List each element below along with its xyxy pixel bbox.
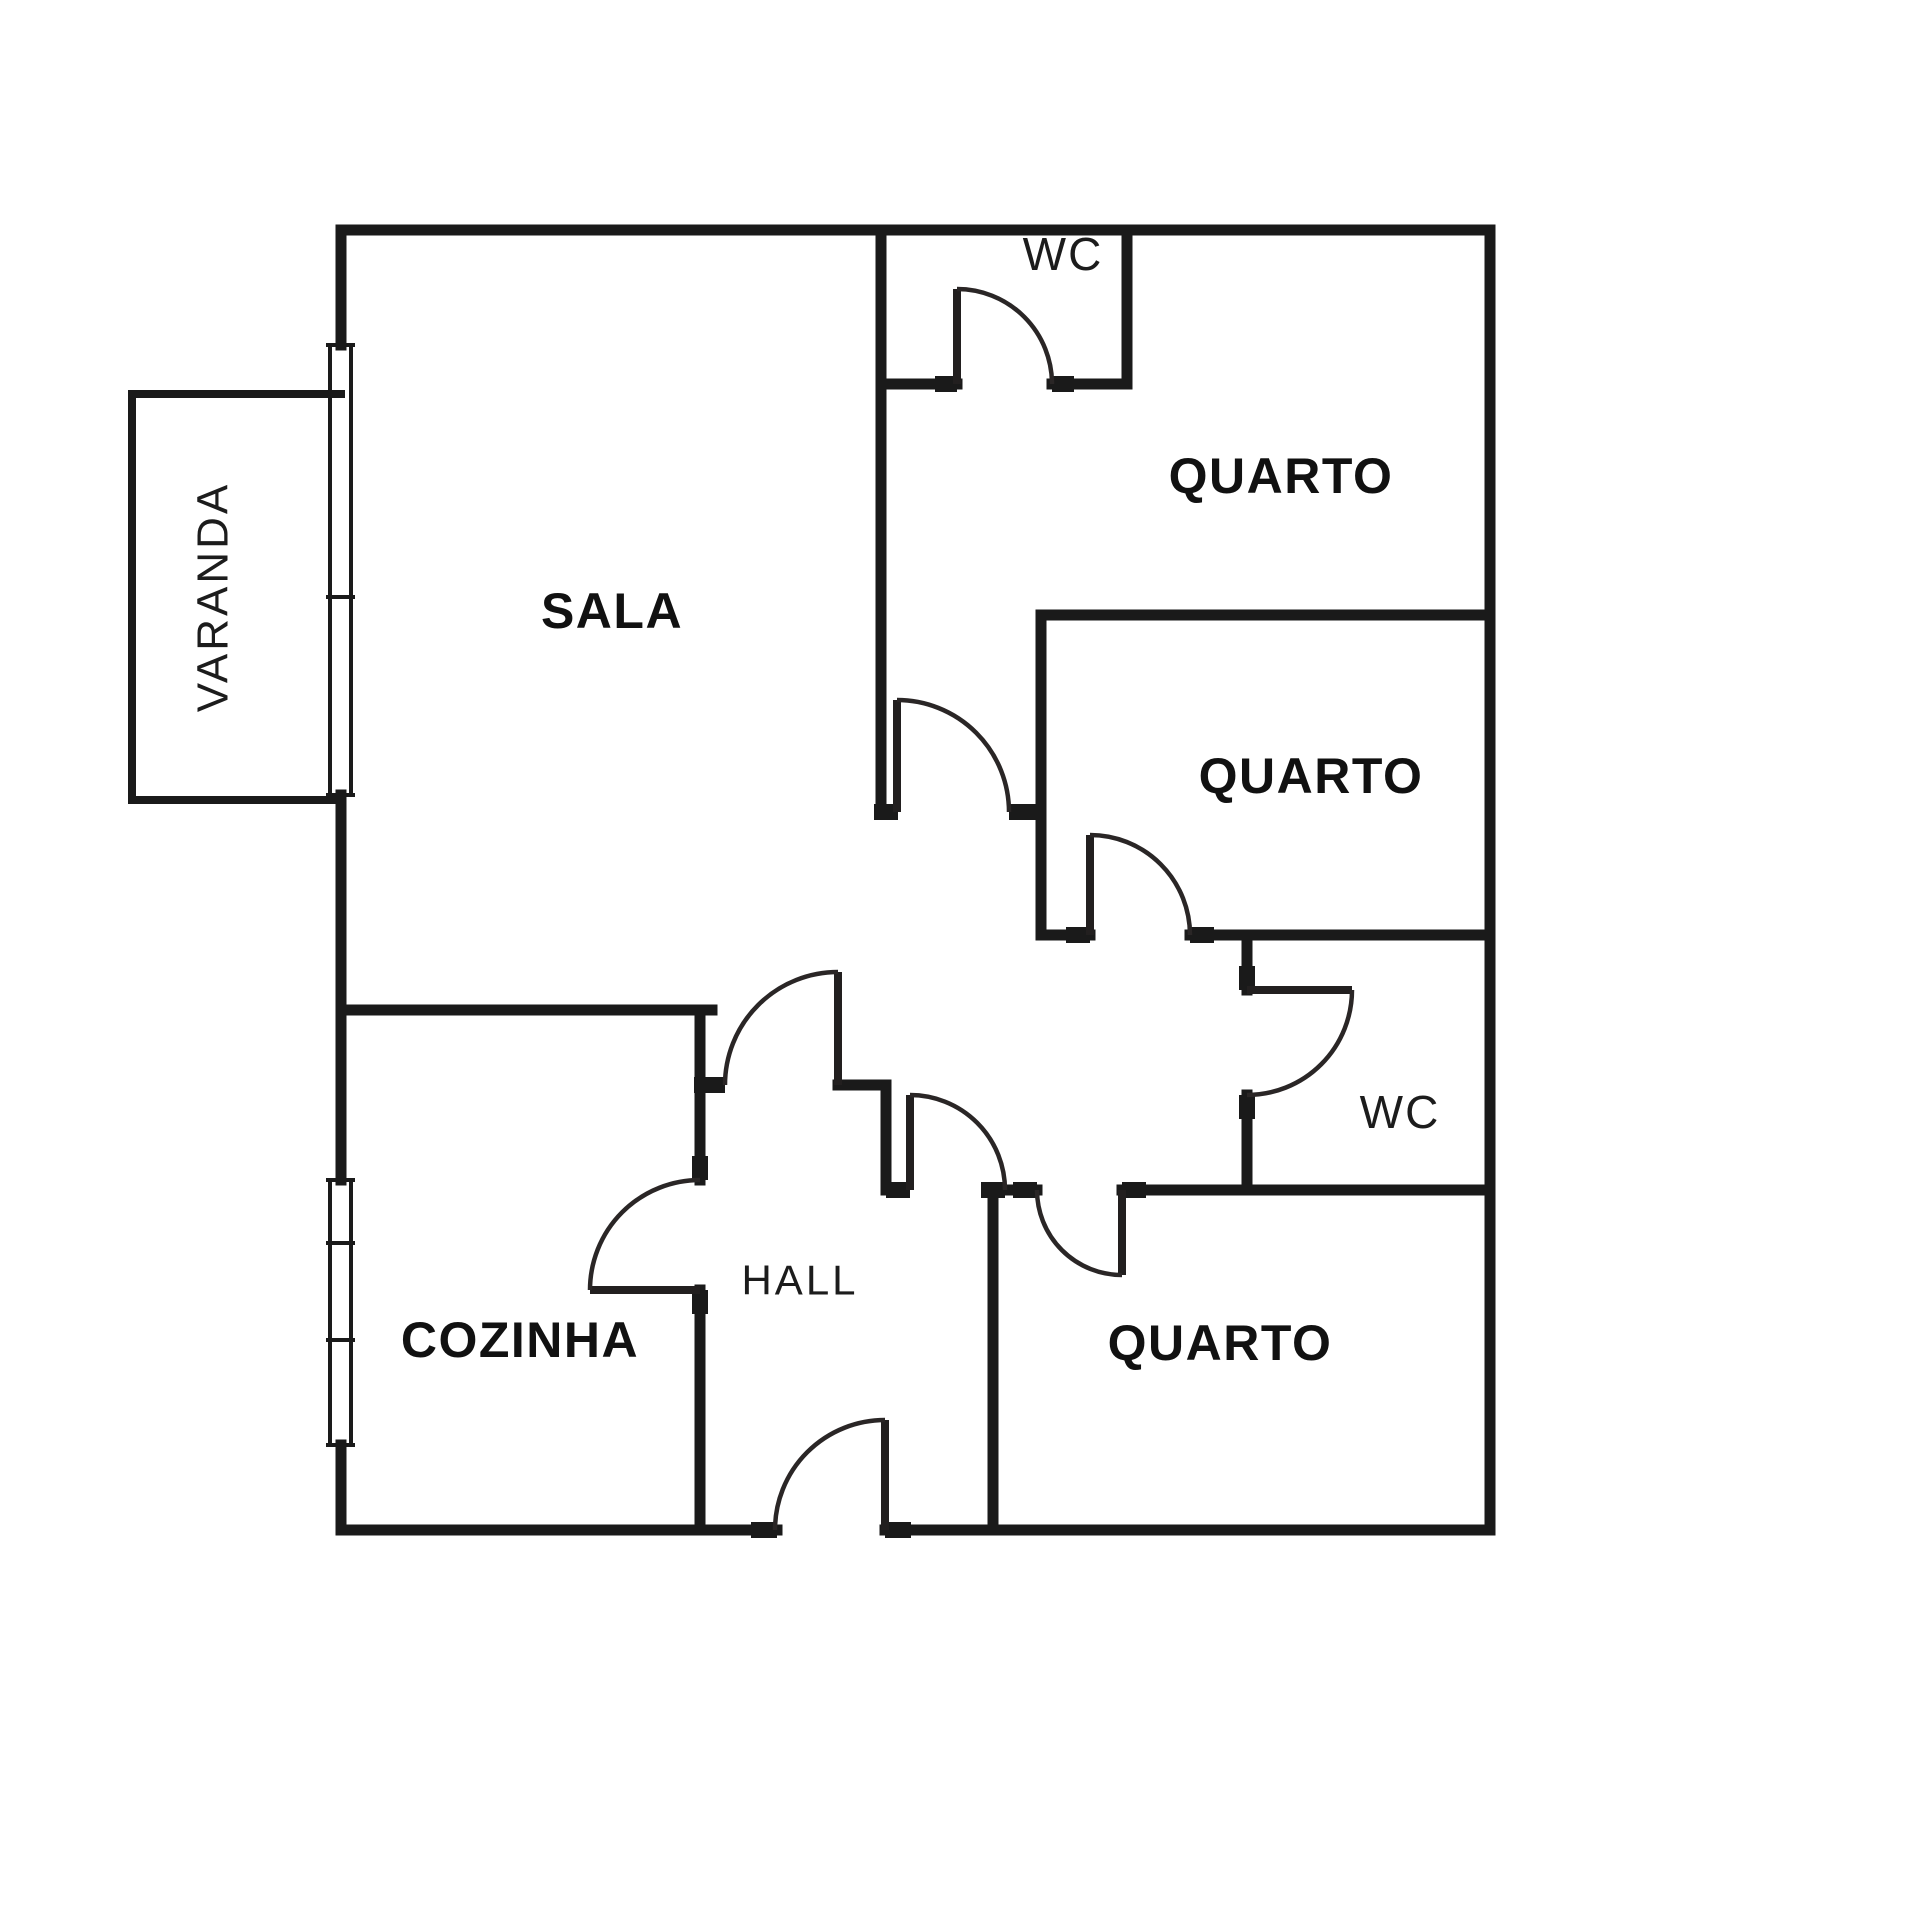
- floor-plan-drawing: VARANDA SALA WC QUARTO QUARTO WC COZINHA…: [0, 0, 1920, 1920]
- door-wc2: [1247, 990, 1352, 1095]
- door-sala: [725, 972, 838, 1085]
- window-sala: [326, 345, 355, 795]
- door-quarto2-arc: [1090, 835, 1190, 935]
- door-entry-arc: [775, 1420, 885, 1530]
- door-sala-arc: [725, 972, 838, 1085]
- room-label-wc-middle: WC: [1360, 1086, 1441, 1138]
- door-wc-top-arc: [957, 289, 1052, 384]
- door-quarto3: [1037, 1190, 1122, 1275]
- door-wc2-arc: [1247, 990, 1352, 1095]
- door-quarto2: [1090, 835, 1190, 935]
- room-label-hall: HALL: [741, 1257, 858, 1304]
- room-label-varanda: VARANDA: [189, 482, 238, 712]
- room-label-quarto-middle: QUARTO: [1199, 748, 1424, 804]
- room-label-quarto-top: QUARTO: [1169, 448, 1394, 504]
- door-entry: [775, 1420, 885, 1530]
- room-label-wc-top: WC: [1023, 228, 1104, 280]
- door-corridor-arc: [897, 700, 1009, 812]
- room-label-sala: SALA: [541, 583, 683, 639]
- door-cozinha-arc: [590, 1180, 700, 1290]
- floor-plan-page: VARANDA SALA WC QUARTO QUARTO WC COZINHA…: [0, 0, 1920, 1920]
- door-wc-top: [957, 289, 1052, 384]
- door-quarto3-arc: [1037, 1190, 1122, 1275]
- room-labels: VARANDA SALA WC QUARTO QUARTO WC COZINHA…: [189, 228, 1441, 1371]
- window-cozinha: [326, 1180, 355, 1445]
- door-cozinha: [590, 1180, 700, 1290]
- room-label-cozinha: COZINHA: [401, 1312, 639, 1368]
- room-label-quarto-bottom: QUARTO: [1108, 1315, 1333, 1371]
- door-corridor: [897, 700, 1009, 812]
- door-hall-arc: [910, 1095, 1005, 1190]
- door-hall: [910, 1095, 1005, 1190]
